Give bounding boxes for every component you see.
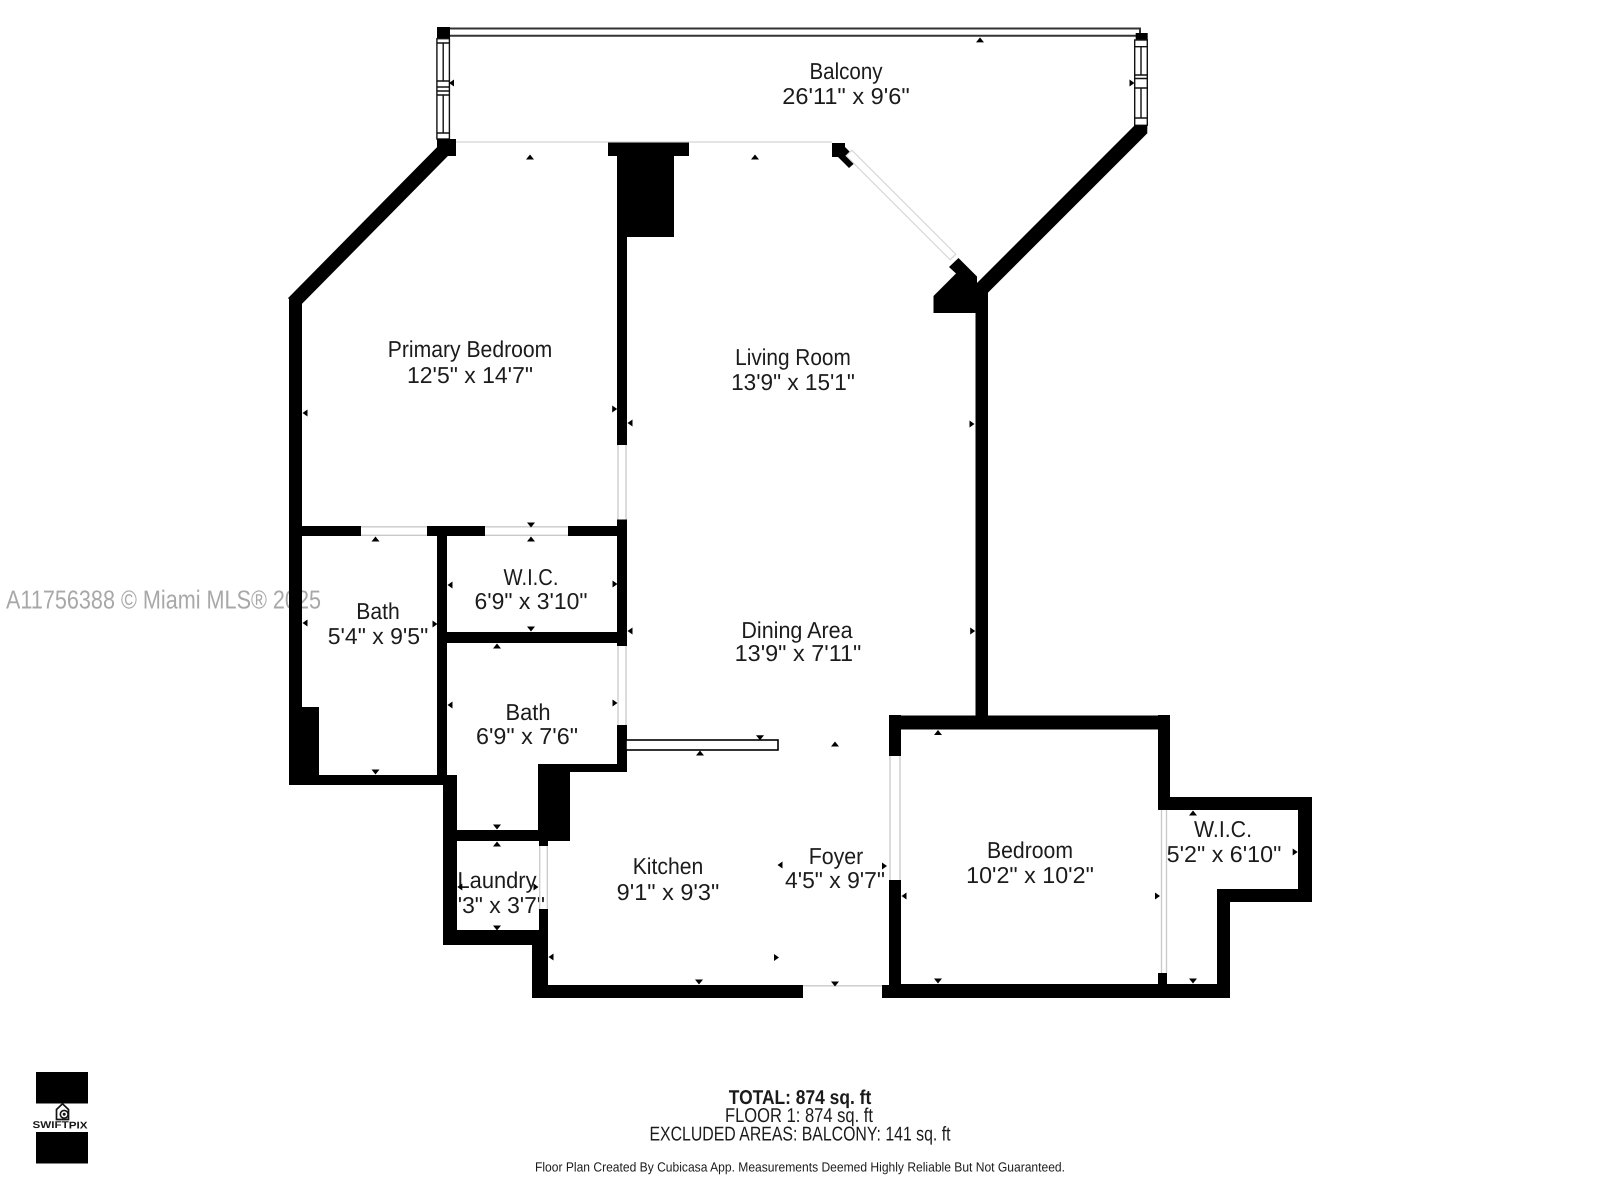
svg-text:Foyer: Foyer xyxy=(809,843,864,869)
svg-text:A11756388 © Miami MLS® 2025: A11756388 © Miami MLS® 2025 xyxy=(6,585,321,615)
svg-text:Floor Plan Created By Cubicasa: Floor Plan Created By Cubicasa App. Meas… xyxy=(535,1160,1065,1175)
svg-text:Balcony: Balcony xyxy=(810,58,883,84)
svg-text:SWIFTPIX: SWIFTPIX xyxy=(33,1120,89,1131)
svg-text:Laundry: Laundry xyxy=(458,867,537,893)
svg-text:5'2" x 6'10": 5'2" x 6'10" xyxy=(1167,841,1282,867)
svg-text:Primary Bedroom: Primary Bedroom xyxy=(388,336,553,362)
svg-text:EXCLUDED AREAS: BALCONY: 141 s: EXCLUDED AREAS: BALCONY: 141 sq. ft xyxy=(650,1124,951,1146)
svg-text:Kitchen: Kitchen xyxy=(633,853,704,879)
svg-text:10'2" x 10'2": 10'2" x 10'2" xyxy=(966,862,1094,888)
svg-text:Bath: Bath xyxy=(356,598,400,624)
svg-text:26'11" x 9'6": 26'11" x 9'6" xyxy=(782,83,910,109)
svg-text:13'9" x 7'11": 13'9" x 7'11" xyxy=(735,640,862,666)
svg-text:5'4" x 9'5": 5'4" x 9'5" xyxy=(328,623,429,649)
svg-text:9'1" x 9'3": 9'1" x 9'3" xyxy=(617,879,720,905)
svg-text:13'9" x 15'1": 13'9" x 15'1" xyxy=(731,369,855,395)
svg-text:3'3" x 3'7": 3'3" x 3'7" xyxy=(445,892,545,918)
svg-text:6'9" x 3'10": 6'9" x 3'10" xyxy=(475,588,588,614)
svg-text:4'5" x 9'7": 4'5" x 9'7" xyxy=(785,867,885,893)
svg-text:Bedroom: Bedroom xyxy=(987,837,1073,863)
svg-text:6'9" x 7'6": 6'9" x 7'6" xyxy=(476,723,578,749)
svg-text:W.I.C.: W.I.C. xyxy=(1194,816,1252,842)
svg-text:Living Room: Living Room xyxy=(735,344,851,370)
svg-text:W.I.C.: W.I.C. xyxy=(504,564,559,590)
svg-text:Bath: Bath xyxy=(506,699,551,725)
svg-text:12'5" x 14'7": 12'5" x 14'7" xyxy=(407,362,533,388)
